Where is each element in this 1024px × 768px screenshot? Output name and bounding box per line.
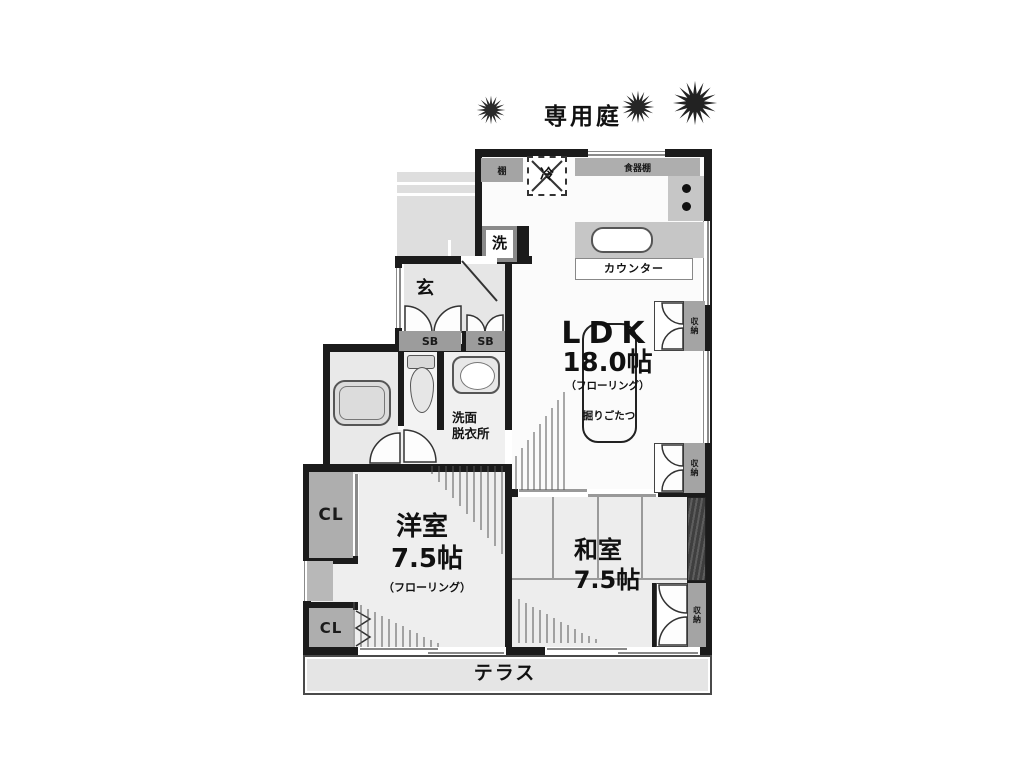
window [701,351,710,443]
shelf-label: 棚 [497,164,506,177]
ldk-flooring: （フローリング） [550,381,665,392]
washitsu-size: 7.5帖 [532,568,682,593]
cupboard-label: 食器棚 [624,161,651,174]
common-area-line [397,193,477,196]
washbasin-bowl [460,362,495,390]
window-sash-line [360,648,438,650]
window-sash-line [547,648,627,650]
common-area-line [397,182,477,185]
door-arc [402,427,440,464]
door-arc [654,443,684,493]
wall [517,226,529,264]
terrace-label: テラス [405,664,605,684]
wall [323,344,330,464]
wood-panel [687,497,706,581]
shoebox-label: SB [477,335,493,348]
storage: 収納 [688,583,706,647]
plant-icon [619,90,657,124]
plant-icon [476,95,506,125]
shoebox: SB [466,331,505,351]
washer-label: 洗 [492,236,507,252]
washbasin [452,356,500,394]
wall [398,352,404,426]
refrigerator-label: 冷 [540,168,554,183]
terrace: テラス [303,655,712,695]
washroom-label-line2: 脱衣所 [452,427,490,440]
wall [395,256,465,264]
refrigerator: 冷 [527,156,567,196]
window [394,268,402,328]
pillar [307,561,333,601]
counter-label: カウンター [604,263,664,275]
shelf: 棚 [481,158,523,182]
closet-label: CL [320,619,343,637]
youshitsu-flooring: （フローリング） [352,582,502,594]
closet: CL [309,608,353,647]
burner-icon [682,184,691,193]
door-arc [466,311,504,333]
sliding-window [545,647,700,655]
door-arc [654,301,684,351]
bathtub [333,380,391,426]
shoebox-label: SB [422,335,438,348]
wall [505,464,512,648]
hatch-fan [514,388,566,490]
hatch-fan [352,600,446,647]
stove [668,176,704,221]
window-sash-line [618,652,698,654]
closet-label: CL [318,505,343,525]
door-arc [360,429,402,465]
window-sash-line [428,652,504,654]
plant-icon [670,80,720,126]
storage: 収納 [684,443,705,493]
washroom-label-line1: 洗面 [452,411,477,424]
genkan-label: 玄 [416,280,434,299]
hatch-fan [430,466,506,556]
kotatsu-label: 掘りごたつ [578,411,640,422]
storage-label: 収納 [692,606,703,624]
door-arc [404,303,462,333]
cupboard: 食器棚 [575,158,700,176]
storage-label: 収納 [689,459,700,477]
shoebox: SB [399,331,461,351]
burner-icon [682,202,691,211]
washitsu-name: 和室 [523,538,673,563]
hatch-fan [517,597,601,643]
wall [437,344,444,430]
kitchen-counter [575,222,704,258]
door-opening [505,430,512,464]
entrance-door-leaf [459,258,501,304]
bathtub-inner [339,386,385,420]
storage-label: 収納 [689,317,700,335]
floor-plan: 専用庭 [0,0,1024,768]
ldk-size: 18.0帖 [550,350,665,377]
counter-bar: カウンター [575,258,693,280]
sink [591,227,653,253]
wall [505,263,512,430]
ldk-name: LDK [552,318,662,350]
sliding-window [358,647,506,655]
sliding-door [518,489,658,497]
storage: 収納 [684,301,705,351]
window [588,149,665,157]
